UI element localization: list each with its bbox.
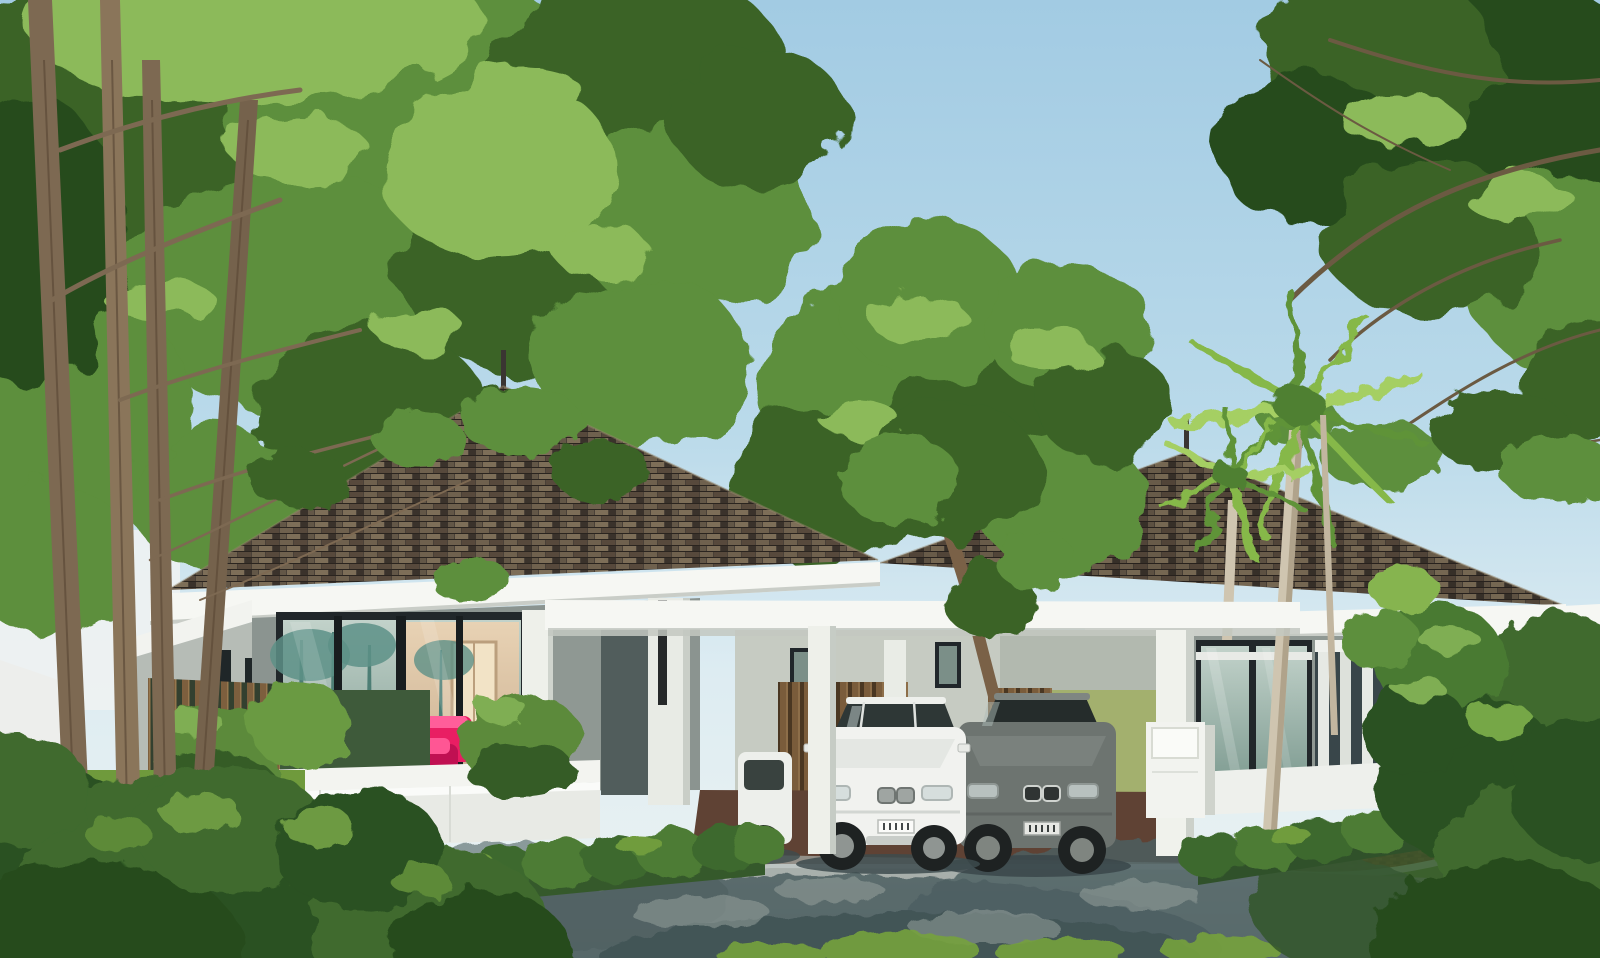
meter-box [1146,722,1215,818]
architectural-rendering [0,0,1600,958]
